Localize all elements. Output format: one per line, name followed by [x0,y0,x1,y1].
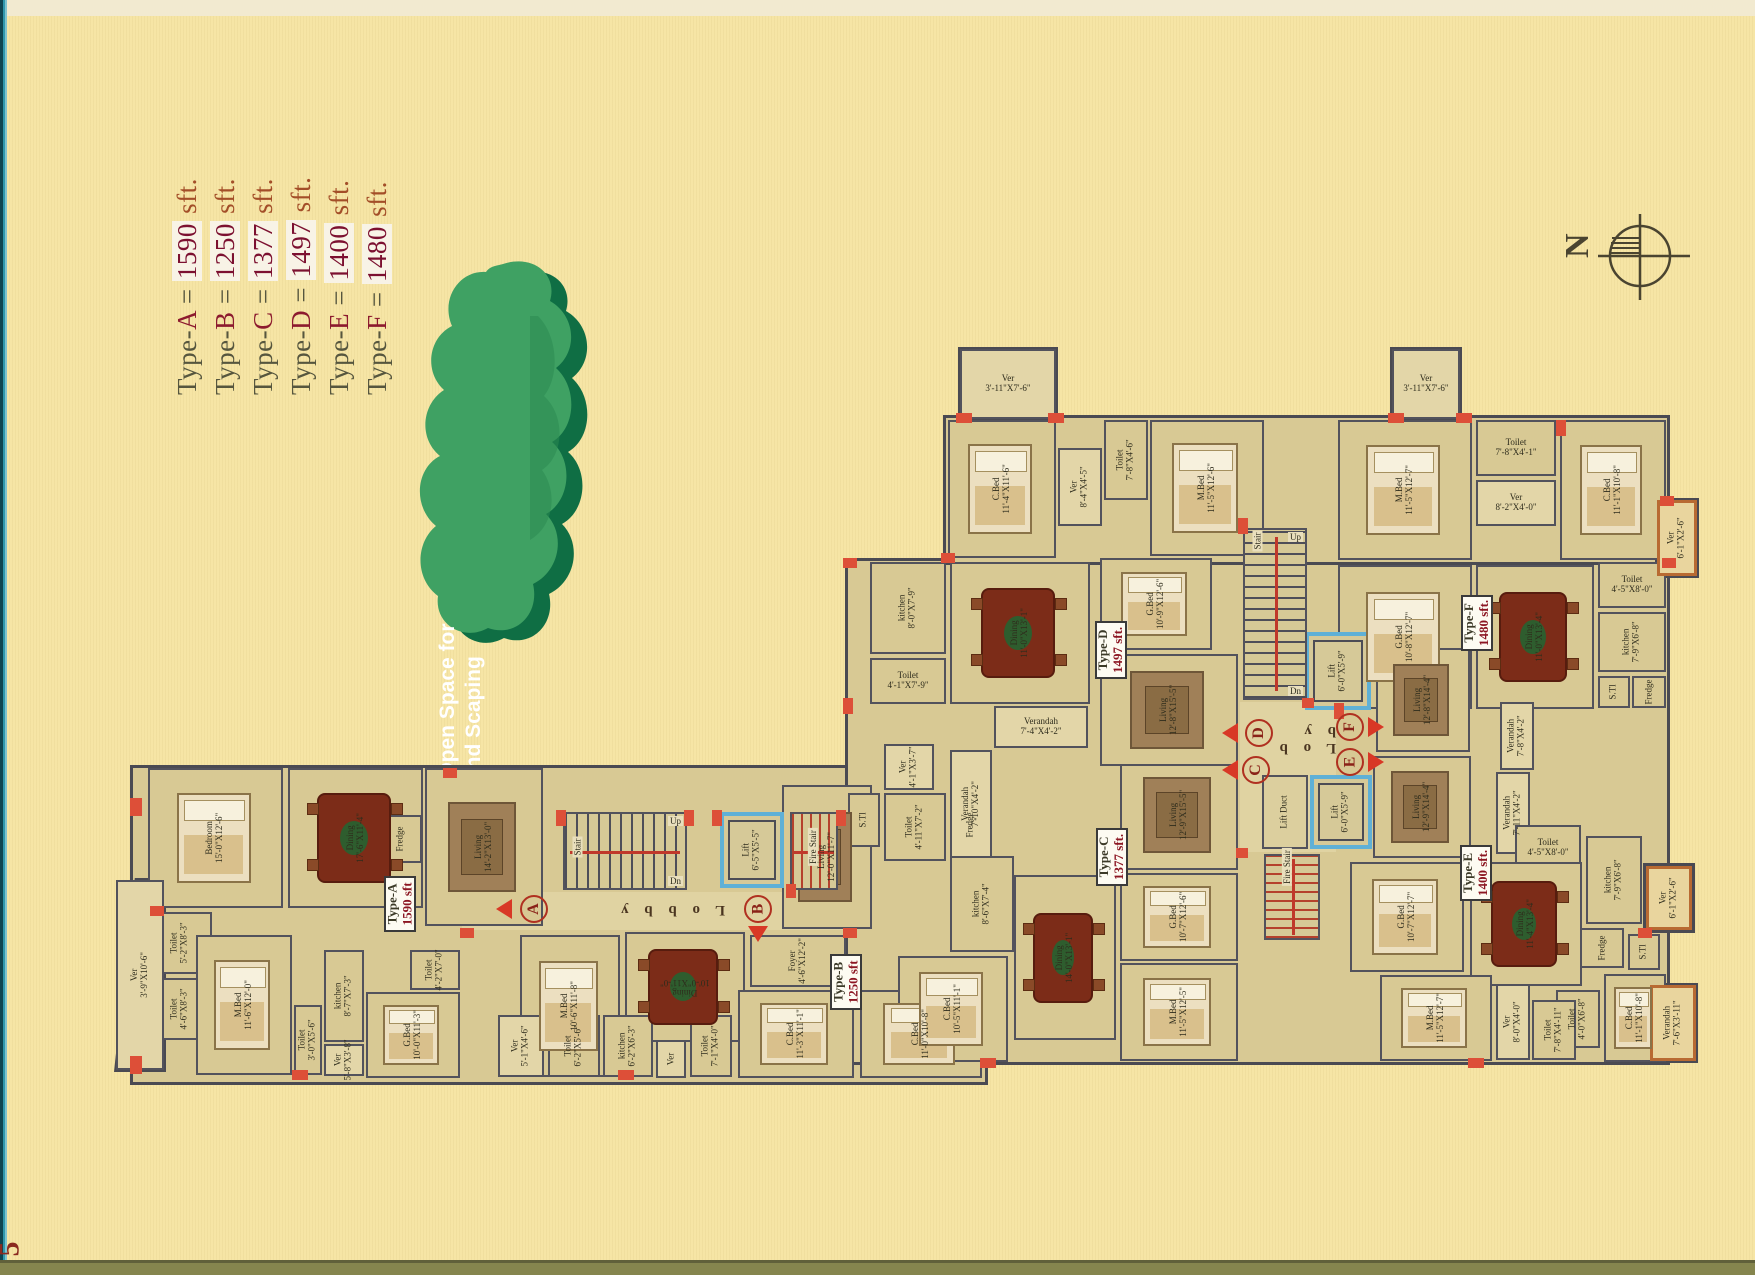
entry-arrow-icon [748,926,768,942]
entry-arrow-icon [1368,752,1384,772]
room-gbed-e: G.Bed 10'-7"X12'-7" [1350,862,1464,972]
wall-opening-accent [150,906,164,916]
unit-area-text: 1480 sft. [1477,600,1492,646]
lift-label: Lift 6'-0"X5'-9" [1328,650,1348,691]
room-label-cbed-b: C.Bed 11'-3"X11'-1" [786,1009,806,1058]
room-ver-f2: Ver 8'-2"X4'-0" [1476,480,1556,526]
room-label-dining-c: Dining 14'-0"X13'-1" [1055,932,1075,982]
room-label-bedroom-a: Bedroom 15'-0"X12'-6" [206,813,226,863]
room-label-gbed-f: G.Bed 10'-8"X12'-7" [1395,612,1415,662]
wall-opening-accent [1302,698,1314,708]
room-dining-f: Dining 11'-0"X13'-4" [1476,565,1594,709]
room-ver-b2: Ver [656,1040,686,1078]
room-label-toilet-a1: Toilet 5'-2"X8'-3" [170,922,190,963]
room-label-stl-e: S.Tl [1639,944,1649,959]
entry-arrow-icon [1222,760,1238,780]
room-stl-f: S.Tl [1598,676,1630,708]
room-label-kitchen-e: kitchen 7'-9"X6'-8" [1604,859,1624,900]
chair-icon [391,803,403,815]
entry-arrow-icon [1368,717,1384,737]
room-label-mbed-d: M.Bed 11'-5"X12'-6" [1197,463,1217,513]
chair-icon [1055,598,1067,610]
entry-marker-a: A [520,895,548,923]
entry-marker-b: B [744,895,772,923]
room-toilet-d2: Toilet 4'-1"X7'-9" [870,658,946,704]
lift-label: Lift 6'-5"X5'-5" [742,829,762,870]
room-fredge-e: Fredge [1580,928,1624,968]
wall-opening-accent [443,768,457,778]
room-label-foyer-b: Foyer 4'-6"X12'-2" [788,938,808,984]
entry-marker-letter: F [1341,722,1359,732]
room-toilet-f: Toilet 7'-8"X4'-1" [1476,420,1556,476]
room-label-toilet-e: Toilet 4'-5"X8'-0" [1527,838,1568,858]
room-label-toilet-f: Toilet 7'-8"X4'-1" [1495,438,1536,458]
unit-label-type-b: Type-B1250 sft [830,954,862,1010]
room-label-toilet-e3: Toilet 7'-8"X4'-11" [1544,1007,1564,1052]
wall-opening-accent [556,810,566,826]
room-label-toilet-a3: Toilet 3'-0"X5'-6" [298,1019,318,1060]
room-label-liftduct-rb: Lift Duct [1280,795,1290,828]
room-label-fredge-f: Fredge [1644,679,1654,704]
wall-opening-accent [843,698,853,714]
open-space-blob: 54% Open Space forLand Scaping [418,256,598,656]
room-dining-d: Dining 11'-0"X13'-1" [950,562,1090,704]
entry-marker-letter: E [1341,757,1359,768]
room-liftduct-rb: Lift Duct [1262,775,1308,849]
room-gbed-ab: G.Bed 10'-0"X11'-3" [366,992,460,1078]
wall-opening-accent [292,1070,308,1080]
legend-item-type-d: Type-D = 1497 sft. [286,157,322,395]
room-living-e: Living 12'-9"X14'-4" [1373,756,1471,858]
room-label-ver-a: Ver 3'-9"X10'-6" [130,952,150,998]
stair-dn-label: Dn [668,876,683,886]
legend-item-type-c: Type-C = 1377 sft. [248,157,284,395]
room-label-dining-a: Dining 17'-6"X11'-4" [346,813,366,863]
chair-icon [638,1001,650,1013]
room-label-kitchen-a: kitchen 8'-7"X7'-3" [334,975,354,1016]
chair-icon [1557,943,1569,955]
chair-icon [1023,979,1035,991]
unit-label-type-d: Type-D1497 sft. [1095,621,1127,679]
room-label-mbed-c: M.Bed 11'-5"X12'-5" [1169,987,1189,1037]
unit-type-text: Type-D [1096,627,1111,673]
stair-up-label: Up [1288,532,1303,542]
room-label-dining-e: Dining 11'-4"X13'-4" [1516,899,1536,949]
room-kitchen-c: kitchen 8'-6"X7'-4" [950,856,1014,952]
room-verandah-c1: Verandah 7'-4"X4'-2" [994,706,1088,748]
chair-icon [718,1001,730,1013]
chair-icon [1093,923,1105,935]
room-ver-f: Ver 3'-11"X7'-6" [1392,349,1460,419]
room-verandah-e3: Verandah 7'-6"X3'-11" [1650,985,1696,1061]
wall-opening-accent [1456,413,1472,423]
wall-opening-accent [684,810,694,826]
chair-icon [638,959,650,971]
unit-area-text: 1590 sft [400,883,415,926]
room-label-ver-d: Ver 3'-11"X7'-6" [985,374,1030,394]
room-label-fredge-e: Fredge [1597,935,1607,960]
room-label-cbed-e: C.Bed 11'-1"X10'-8" [1625,993,1645,1043]
chair-icon [1567,658,1579,670]
entry-marker-letter: C [1247,764,1265,776]
room-label-gbed-d: G.Bed 10'-9"X12'-6" [1146,579,1166,629]
room-dining-c: Dining 14'-0"X13'-1" [1014,875,1116,1040]
unit-type-text: Type-A [385,883,400,926]
chair-icon [307,803,319,815]
room-kitchen-e: kitchen 7'-9"X6'-8" [1586,836,1642,924]
entry-arrow-icon [1222,723,1238,743]
room-label-cbed-f: C.Bed 11'-1"X10'-8" [1603,465,1623,515]
room-label-gbed-ab: G.Bed 10'-0"X11'-3" [403,1010,423,1060]
north-compass-icon: N [1548,192,1708,322]
stair-up-label: Up [668,816,683,826]
room-label-gbed-c: G.Bed 10'-7"X12'-6" [1169,892,1189,942]
room-kitchen-a: kitchen 8'-7"X7'-3" [324,950,364,1042]
room-ver-e: Ver 6'-1"X2'-6" [1646,866,1692,930]
room-fredge-f: Fredge [1632,676,1666,708]
lift-label: Lift 6'-0"X5'-9" [1331,791,1351,832]
entry-marker-f: F [1336,713,1364,741]
legend-item-type-e: Type-E = 1400 sft. [324,157,360,395]
room-toilet-a3: Toilet 3'-0"X5'-6" [294,1005,322,1075]
wall-opening-accent [843,558,857,568]
entry-marker-c: C [1242,756,1270,784]
unit-label-type-a: Type-A1590 sft [384,876,416,932]
room-label-toilet-d2: Toilet 4'-1"X7'-9" [887,671,928,691]
stair-rail [1275,537,1278,692]
room-label-kitchen-f: kitchen 7'-9"X6'-8" [1622,621,1642,662]
room-label-ver-d2: Ver 8'-4"X4'-5" [1070,466,1090,507]
room-verandah-e1: Verandah 7'-8"X4'-2" [1500,702,1534,770]
room-label-verandah-c1: Verandah 7'-4"X4'-2" [1020,717,1061,737]
page-left-edge [0,0,7,1275]
unit-type-text: Type-B [831,961,846,1004]
legend-item-type-f: Type-F = 1480 sft. [362,157,398,395]
room-toilet-c: Toilet 4'-11"X7'-2" [884,793,946,861]
room-bedroom-a: Bedroom 15'-0"X12'-6" [148,768,283,908]
room-label-living-a: Living 14'-2"X13'-0" [474,822,494,872]
room-label-dining-b: Dining 10'-0"X11'-0" [660,977,710,997]
room-label-mbed-e: M.Bed 11'-5"X12'-7" [1426,993,1446,1043]
room-label-living-c: Living 12'-9"X15'-5" [1169,790,1189,840]
room-label-toilet-b2: Toilet 7'-1"X4'-0" [701,1025,721,1066]
chair-icon [307,859,319,871]
room-living-c: Living 12'-9"X15'-5" [1120,760,1238,870]
room-label-ver-f: Ver 3'-11"X7'-6" [1403,374,1448,394]
wall-opening-accent [1388,413,1404,423]
chair-icon [971,654,983,666]
room-verandah-c2: Verandah 7'-10"X4'-2" [950,750,992,858]
legend-item-type-a: Type-A = 1590 sft. [172,157,208,395]
entry-marker-d: D [1245,719,1273,747]
unit-area-text: 1250 sft [846,961,861,1004]
wall-opening-accent [836,810,846,826]
wall-opening-accent [130,1056,142,1074]
room-stl-e: S.Tl [1628,934,1660,970]
unit-type-text: Type-F [1462,600,1477,646]
entry-marker-letter: A [525,903,543,915]
unit-type-text: Type-C [1097,834,1112,880]
room-ver-d2: Ver 8'-4"X4'-5" [1058,448,1102,526]
room-label-mbed-f: M.Bed 11'-5"X12'-7" [1395,465,1415,515]
chair-icon [1557,891,1569,903]
room-label-toilet-f2: Toilet 4'-5"X8'-0" [1611,575,1652,595]
room-label-cbed-b2: C.Bed 11'-0"X10'-8" [911,1009,931,1059]
unit-label-type-f: Type-F1480 sft. [1461,595,1493,651]
chair-icon [1093,979,1105,991]
unit-type-text: Type-E [1461,850,1476,896]
unit-label-type-c: Type-C1377 sft. [1096,828,1128,886]
unit-label-type-e: Type-E1400 sft. [1460,845,1492,901]
wall-opening-accent [786,884,796,898]
chair-icon [718,959,730,971]
lobby-bw-label: L o b b y [600,897,740,923]
entry-marker-letter: B [749,904,767,915]
stair-rail [570,851,680,854]
lift-rb2: Lift 6'-0"X5'-9" [1310,775,1372,849]
room-label-kitchen-c: kitchen 8'-6"X7'-4" [972,883,992,924]
room-label-verandah-e1: Verandah 7'-8"X4'-2" [1507,715,1527,756]
wall-opening-accent [130,798,142,816]
compass-north-letter: N [1559,233,1596,258]
room-label-living-f: Living 12'-8"X14'-4" [1413,675,1433,725]
room-label-toilet-e2: Toilet 4'-0"X6'-8" [1568,998,1588,1039]
room-label-dining-d: Dining 11'-0"X13'-1" [1010,608,1030,658]
chair-icon [1055,654,1067,666]
room-label-toilet-c: Toilet 4'-11"X7'-2" [905,804,925,849]
room-label-living-d: Living 12'-8"X15'-5" [1159,685,1179,735]
legend-item-type-b: Type-B = 1250 sft. [210,157,246,395]
wall-opening-accent [618,1070,634,1080]
room-label-gbed-e: G.Bed 10'-7"X12'-7" [1397,892,1417,942]
wall-opening-accent [1556,420,1566,436]
room-label-living-e: Living 12'-9"X14'-4" [1412,782,1432,832]
room-ver-d: Ver 3'-11"X7'-6" [960,349,1056,419]
lift-rb1: Lift 6'-0"X5'-9" [1305,632,1371,710]
wall-opening-accent [1468,1058,1484,1068]
room-kitchen-d: kitchen 8'-0"X7'-9" [870,562,946,654]
room-ver-b1: Ver 5'-1"X4'-6" [498,1015,544,1077]
room-label-cbed-d: C.Bed 11'-4"X11'-6" [992,464,1012,513]
room-label-ver-f3: Ver 6'-1"X2'-6" [1667,517,1687,558]
firestair-rb: Fire Stair [1264,854,1320,940]
unit-area-text: 1377 sft. [1112,834,1127,880]
room-label-verandah-e3: Verandah 7'-6"X3'-11" [1663,1000,1683,1045]
room-mbed-a: M.Bed 11'-6"X12'-0" [196,935,292,1075]
room-ver-c: Ver 4'-1"X3'-7" [884,744,934,790]
wall-opening-accent [1638,928,1652,938]
room-toilet-f2: Toilet 4'-5"X8'-0" [1598,562,1666,608]
room-kitchen-f: kitchen 7'-9"X6'-8" [1598,612,1666,672]
room-label-ver-f2: Ver 8'-2"X4'-0" [1495,493,1536,513]
stair-rail [1292,859,1295,934]
room-mbed-c: M.Bed 11'-5"X12'-5" [1120,963,1238,1061]
page-top-edge [0,0,1755,16]
room-label-kitchen-d: kitchen 8'-0"X7'-9" [898,587,918,628]
wall-opening-accent [843,928,857,938]
room-label-ver-e: Ver 6'-1"X2'-6" [1659,877,1679,918]
page-bottom-edge [0,1260,1755,1275]
chair-icon [971,598,983,610]
room-label-cbed-c: C.Bed 10'-5"X11'-1" [943,984,963,1034]
room-label-verandah-c2: Verandah 7'-10"X4'-2" [961,781,981,827]
wall-opening-accent [1238,518,1248,534]
room-label-verandah-e2: Verandah 7'-11"X4'-2" [1503,790,1523,835]
wall-opening-accent [1236,848,1248,858]
room-label-living-b: Living 12'-0"X11'-7" [817,832,837,882]
room-label-mbed-a: M.Bed 11'-6"X12'-0" [234,980,254,1030]
room-label-ver-c: Ver 4'-1"X3'-7" [899,746,919,787]
stair-label: Stair [1253,531,1263,552]
entry-arrow-icon [496,899,512,919]
room-mbed-e: M.Bed 11'-5"X12'-7" [1380,975,1492,1061]
entry-marker-e: E [1336,748,1364,776]
stair-label: Fire Stair [1282,848,1292,886]
wall-opening-accent [956,413,972,423]
stair-rb: StairUpDn [1243,528,1307,700]
chair-icon [1481,943,1493,955]
room-toilet-d: Toilet 7'-8"X4'-6" [1104,420,1148,500]
chair-icon [1567,602,1579,614]
wall-opening-accent [712,810,722,826]
room-label-stl-c: S.Tl [859,812,869,827]
room-gbed-c: G.Bed 10'-7"X12'-6" [1120,873,1238,961]
room-label-toilet-b1: Toilet 6'-2"X5'-6" [564,1025,584,1066]
entry-marker-letter: D [1250,727,1268,739]
room-cbed-d: C.Bed 11'-4"X11'-6" [948,420,1056,558]
stair-bw: StairUpDn [563,812,687,890]
room-label-ver-a2: Ver 5'-8"X3'-8" [334,1039,354,1080]
wall-opening-accent [980,1058,996,1068]
room-stl-c: S.Tl [848,793,880,847]
page-number: 5 [0,1242,27,1257]
room-ver-e2: Ver 8'-0"X4'-0" [1496,984,1530,1060]
wall-opening-accent [1660,496,1674,506]
room-label-toilet-d: Toilet 7'-8"X4'-6" [1116,439,1136,480]
room-mbed-f: M.Bed 11'-5"X12'-7" [1338,420,1472,560]
unit-area-text: 1400 sft. [1476,850,1491,896]
room-label-fredge-a: Fredge [395,826,405,851]
room-label-mbed-b: M.Bed 10'-6"X11'-8" [560,981,580,1031]
room-cbed-f: C.Bed 11'-1"X10'-8" [1560,420,1666,560]
stair-dn-label: Dn [1288,686,1303,696]
unit-area-text: 1497 sft. [1111,627,1126,673]
lift-bw: Lift 6'-5"X5'-5" [720,812,784,888]
room-label-ver-b2: Ver [666,1053,676,1066]
wall-opening-accent [1048,413,1064,423]
wall-opening-accent [1662,558,1676,568]
room-toilet-ab: Toilet 4'-2"X7'-0" [410,950,460,990]
room-ver-a2: Ver 5'-8"X3'-8" [324,1044,364,1076]
room-kitchen-b: kitchen 6'-2"X6'-3" [603,1015,653,1077]
room-label-ver-b1: Ver 5'-1"X4'-6" [511,1025,531,1066]
room-label-ver-e2: Ver 8'-0"X4'-0" [1503,1001,1523,1042]
wall-opening-accent [941,553,955,563]
room-label-stl-f: S.Tl [1609,684,1619,699]
brochure-floor-plan-page: 5 Type-A = 1590 sft.Type-B = 1250 sft.Ty… [0,0,1755,1275]
room-label-dining-f: Dining 11'-0"X13'-4" [1525,612,1545,662]
chair-icon [1489,658,1501,670]
wall-opening-accent [460,928,474,938]
chair-icon [391,859,403,871]
stair-label: Stair [573,837,583,858]
room-label-toilet-ab: Toilet 4'-2"X7'-0" [425,949,445,990]
room-label-toilet-a2: Toilet 4'-6"X8'-3" [170,988,190,1029]
chair-icon [1023,923,1035,935]
room-label-kitchen-b: kitchen 6'-2"X6'-3" [618,1025,638,1066]
